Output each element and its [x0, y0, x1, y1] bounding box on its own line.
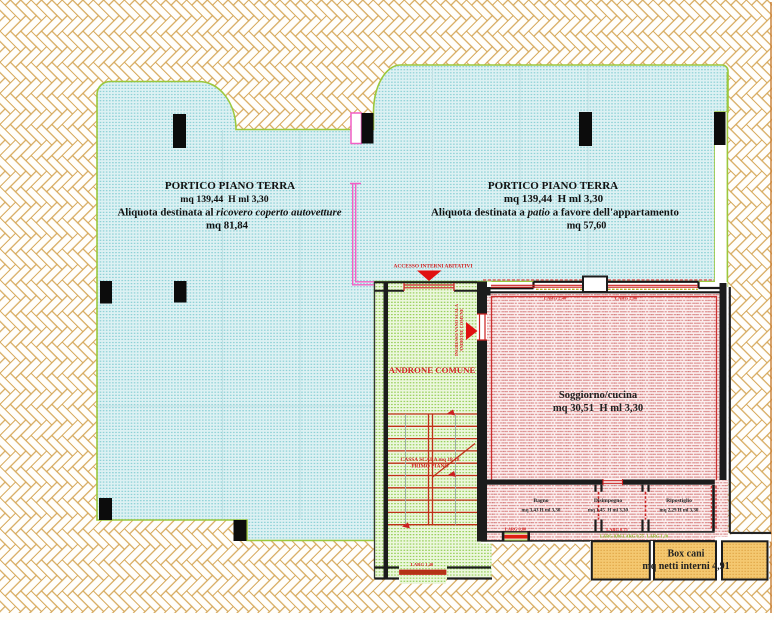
svg-text:LARG 0,75: LARG 0,75 — [606, 527, 628, 532]
svg-text:LARG 0,80 LARG 0,75: LARG 0,80 LARG 0,75 — [600, 533, 645, 538]
svg-text:Ripostiglio: Ripostiglio — [666, 498, 692, 504]
svg-text:LARG 0,80: LARG 0,80 — [505, 526, 527, 531]
svg-text:Aliquota destinata a patio a f: Aliquota destinata a patio a favore dell… — [431, 207, 679, 219]
svg-text:mq 81,84: mq 81,84 — [206, 220, 249, 232]
svg-text:mq netti interni 4,91: mq netti interni 4,91 — [642, 561, 729, 572]
svg-text:Bagno: Bagno — [533, 498, 548, 504]
svg-text:Aliquota destinata al ricovero: Aliquota destinata al ricovero coperto a… — [117, 207, 341, 219]
svg-text:PORTICO PIANO TERRA: PORTICO PIANO TERRA — [488, 180, 618, 192]
svg-text:Soggiorno/cucina: Soggiorno/cucina — [559, 390, 638, 401]
svg-text:CASSA SCALA mq 18,18: CASSA SCALA mq 18,18 — [400, 457, 459, 463]
svg-text:Disimpegno: Disimpegno — [594, 498, 622, 504]
svg-text:Box cani: Box cani — [668, 549, 705, 560]
svg-text:mq 1,45 H ml 3,30: mq 1,45 H ml 3,30 — [588, 509, 629, 514]
svg-text:LARG 1,10: LARG 1,10 — [647, 533, 669, 538]
svg-text:mq 2,29 H ml 3,30: mq 2,29 H ml 3,30 — [660, 509, 699, 514]
svg-text:mq 139,44 H ml 3,30: mq 139,44 H ml 3,30 — [504, 193, 604, 205]
svg-text:ANDRONE COMUNE: ANDRONE COMUNE — [459, 308, 464, 351]
svg-text:mq 139,44 H ml 3,30: mq 139,44 H ml 3,30 — [180, 194, 269, 205]
svg-text:PORTICO PIANO TERRA: PORTICO PIANO TERRA — [165, 180, 295, 192]
svg-text:mq 3,43 H ml 3,30: mq 3,43 H ml 3,30 — [522, 509, 561, 514]
svg-text:PRIMO PIANO: PRIMO PIANO — [411, 464, 448, 470]
svg-text:ACCESSO INTERNI ABITATIVI: ACCESSO INTERNI ABITATIVI — [394, 264, 473, 270]
svg-text:mq 30,51 H ml 3,30: mq 30,51 H ml 3,30 — [553, 403, 643, 414]
svg-text:mq 57,60: mq 57,60 — [567, 221, 607, 232]
svg-text:ANDRONE COMUNE: ANDRONE COMUNE — [389, 365, 476, 375]
svg-text:LARG 1,40: LARG 1,40 — [411, 562, 434, 567]
